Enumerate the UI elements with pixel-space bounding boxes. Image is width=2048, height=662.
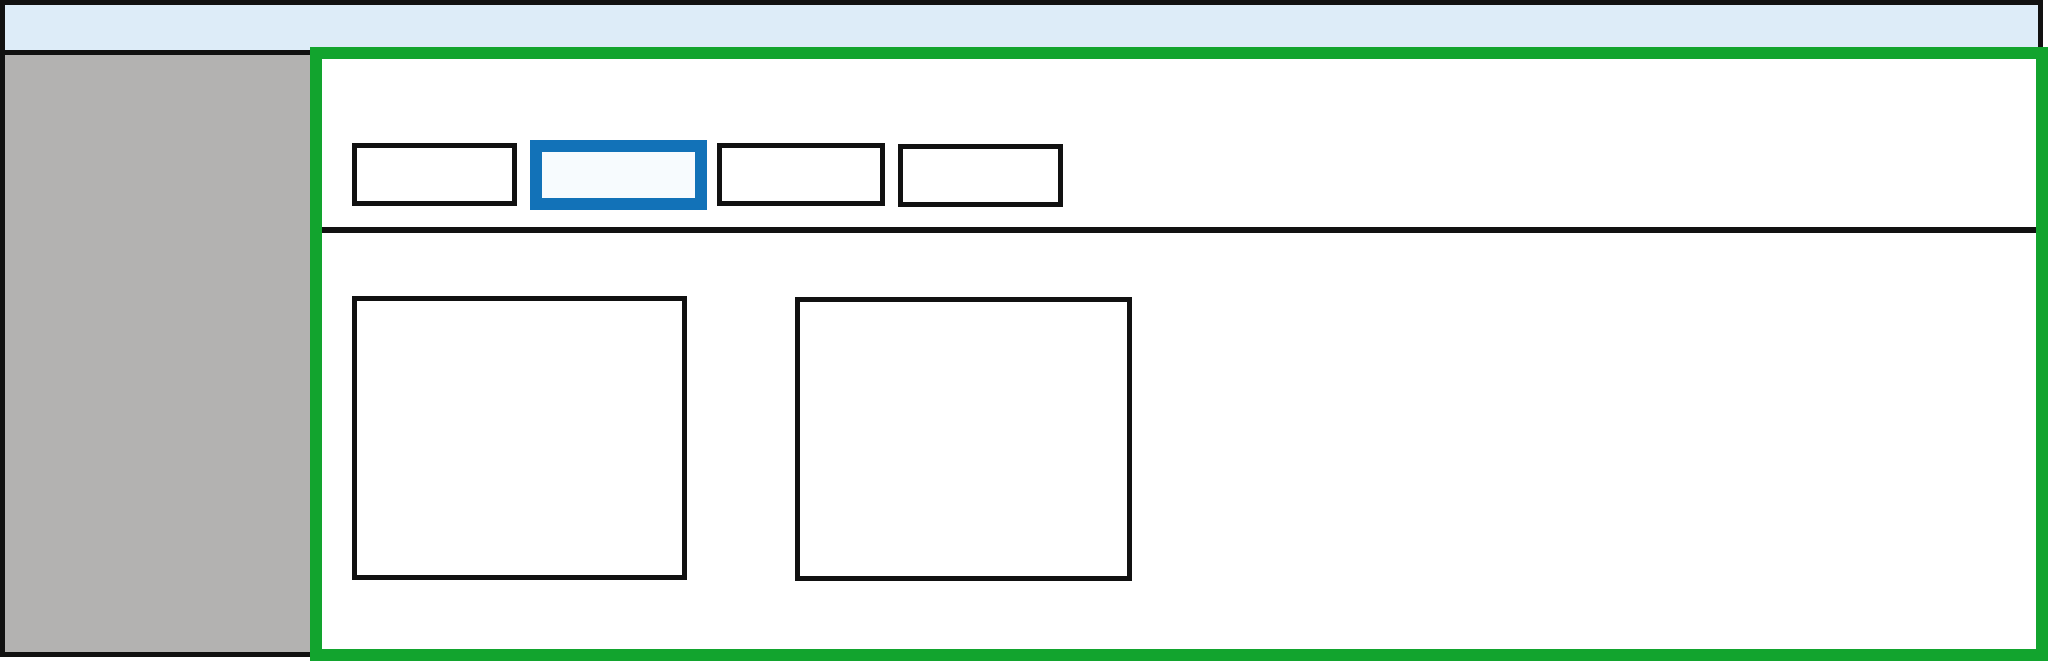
sidebar-pane [0,50,315,657]
app-window [0,0,2048,662]
content-card-1[interactable] [352,296,687,580]
tab-4[interactable] [898,144,1063,207]
content-card-2[interactable] [795,297,1132,581]
tab-1[interactable] [352,143,517,206]
tab-2-active[interactable] [530,140,707,210]
main-panel-highlighted [310,47,2048,661]
tab-3[interactable] [717,143,885,206]
tab-row-divider [322,227,2036,233]
